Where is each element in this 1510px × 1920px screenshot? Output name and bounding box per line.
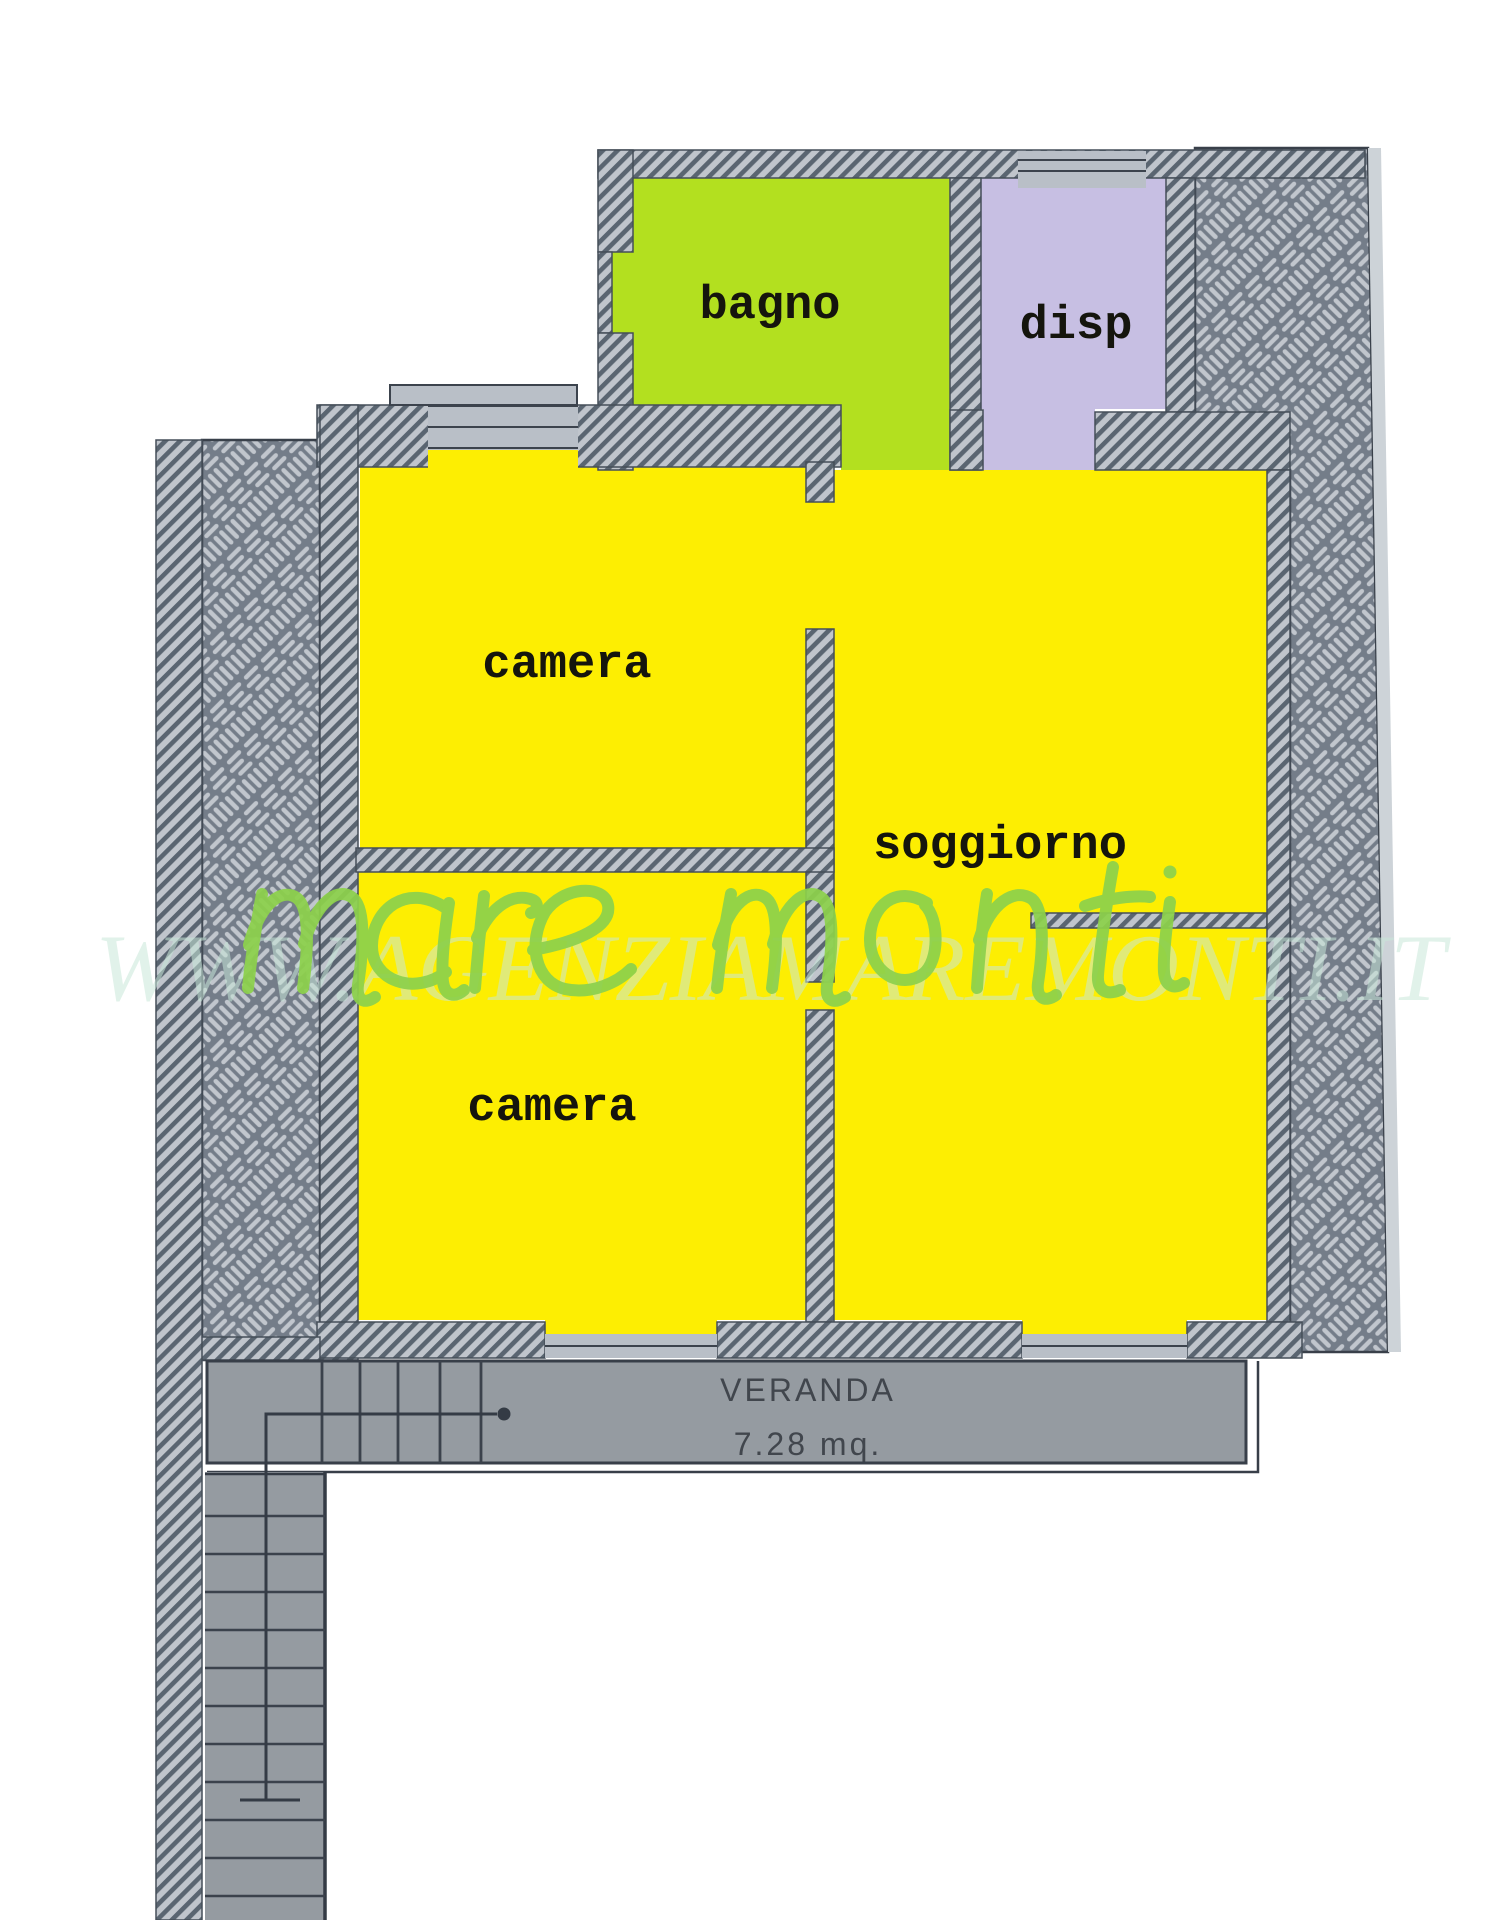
svg-text:7.28 mq.: 7.28 mq. bbox=[734, 1426, 883, 1462]
svg-text:bagno: bagno bbox=[699, 280, 840, 333]
svg-text:camera: camera bbox=[482, 639, 651, 692]
svg-text:disp: disp bbox=[1020, 300, 1133, 353]
svg-text:soggiorno: soggiorno bbox=[873, 820, 1127, 873]
svg-text:camera: camera bbox=[467, 1082, 636, 1135]
svg-text:VERANDA: VERANDA bbox=[720, 1372, 896, 1408]
